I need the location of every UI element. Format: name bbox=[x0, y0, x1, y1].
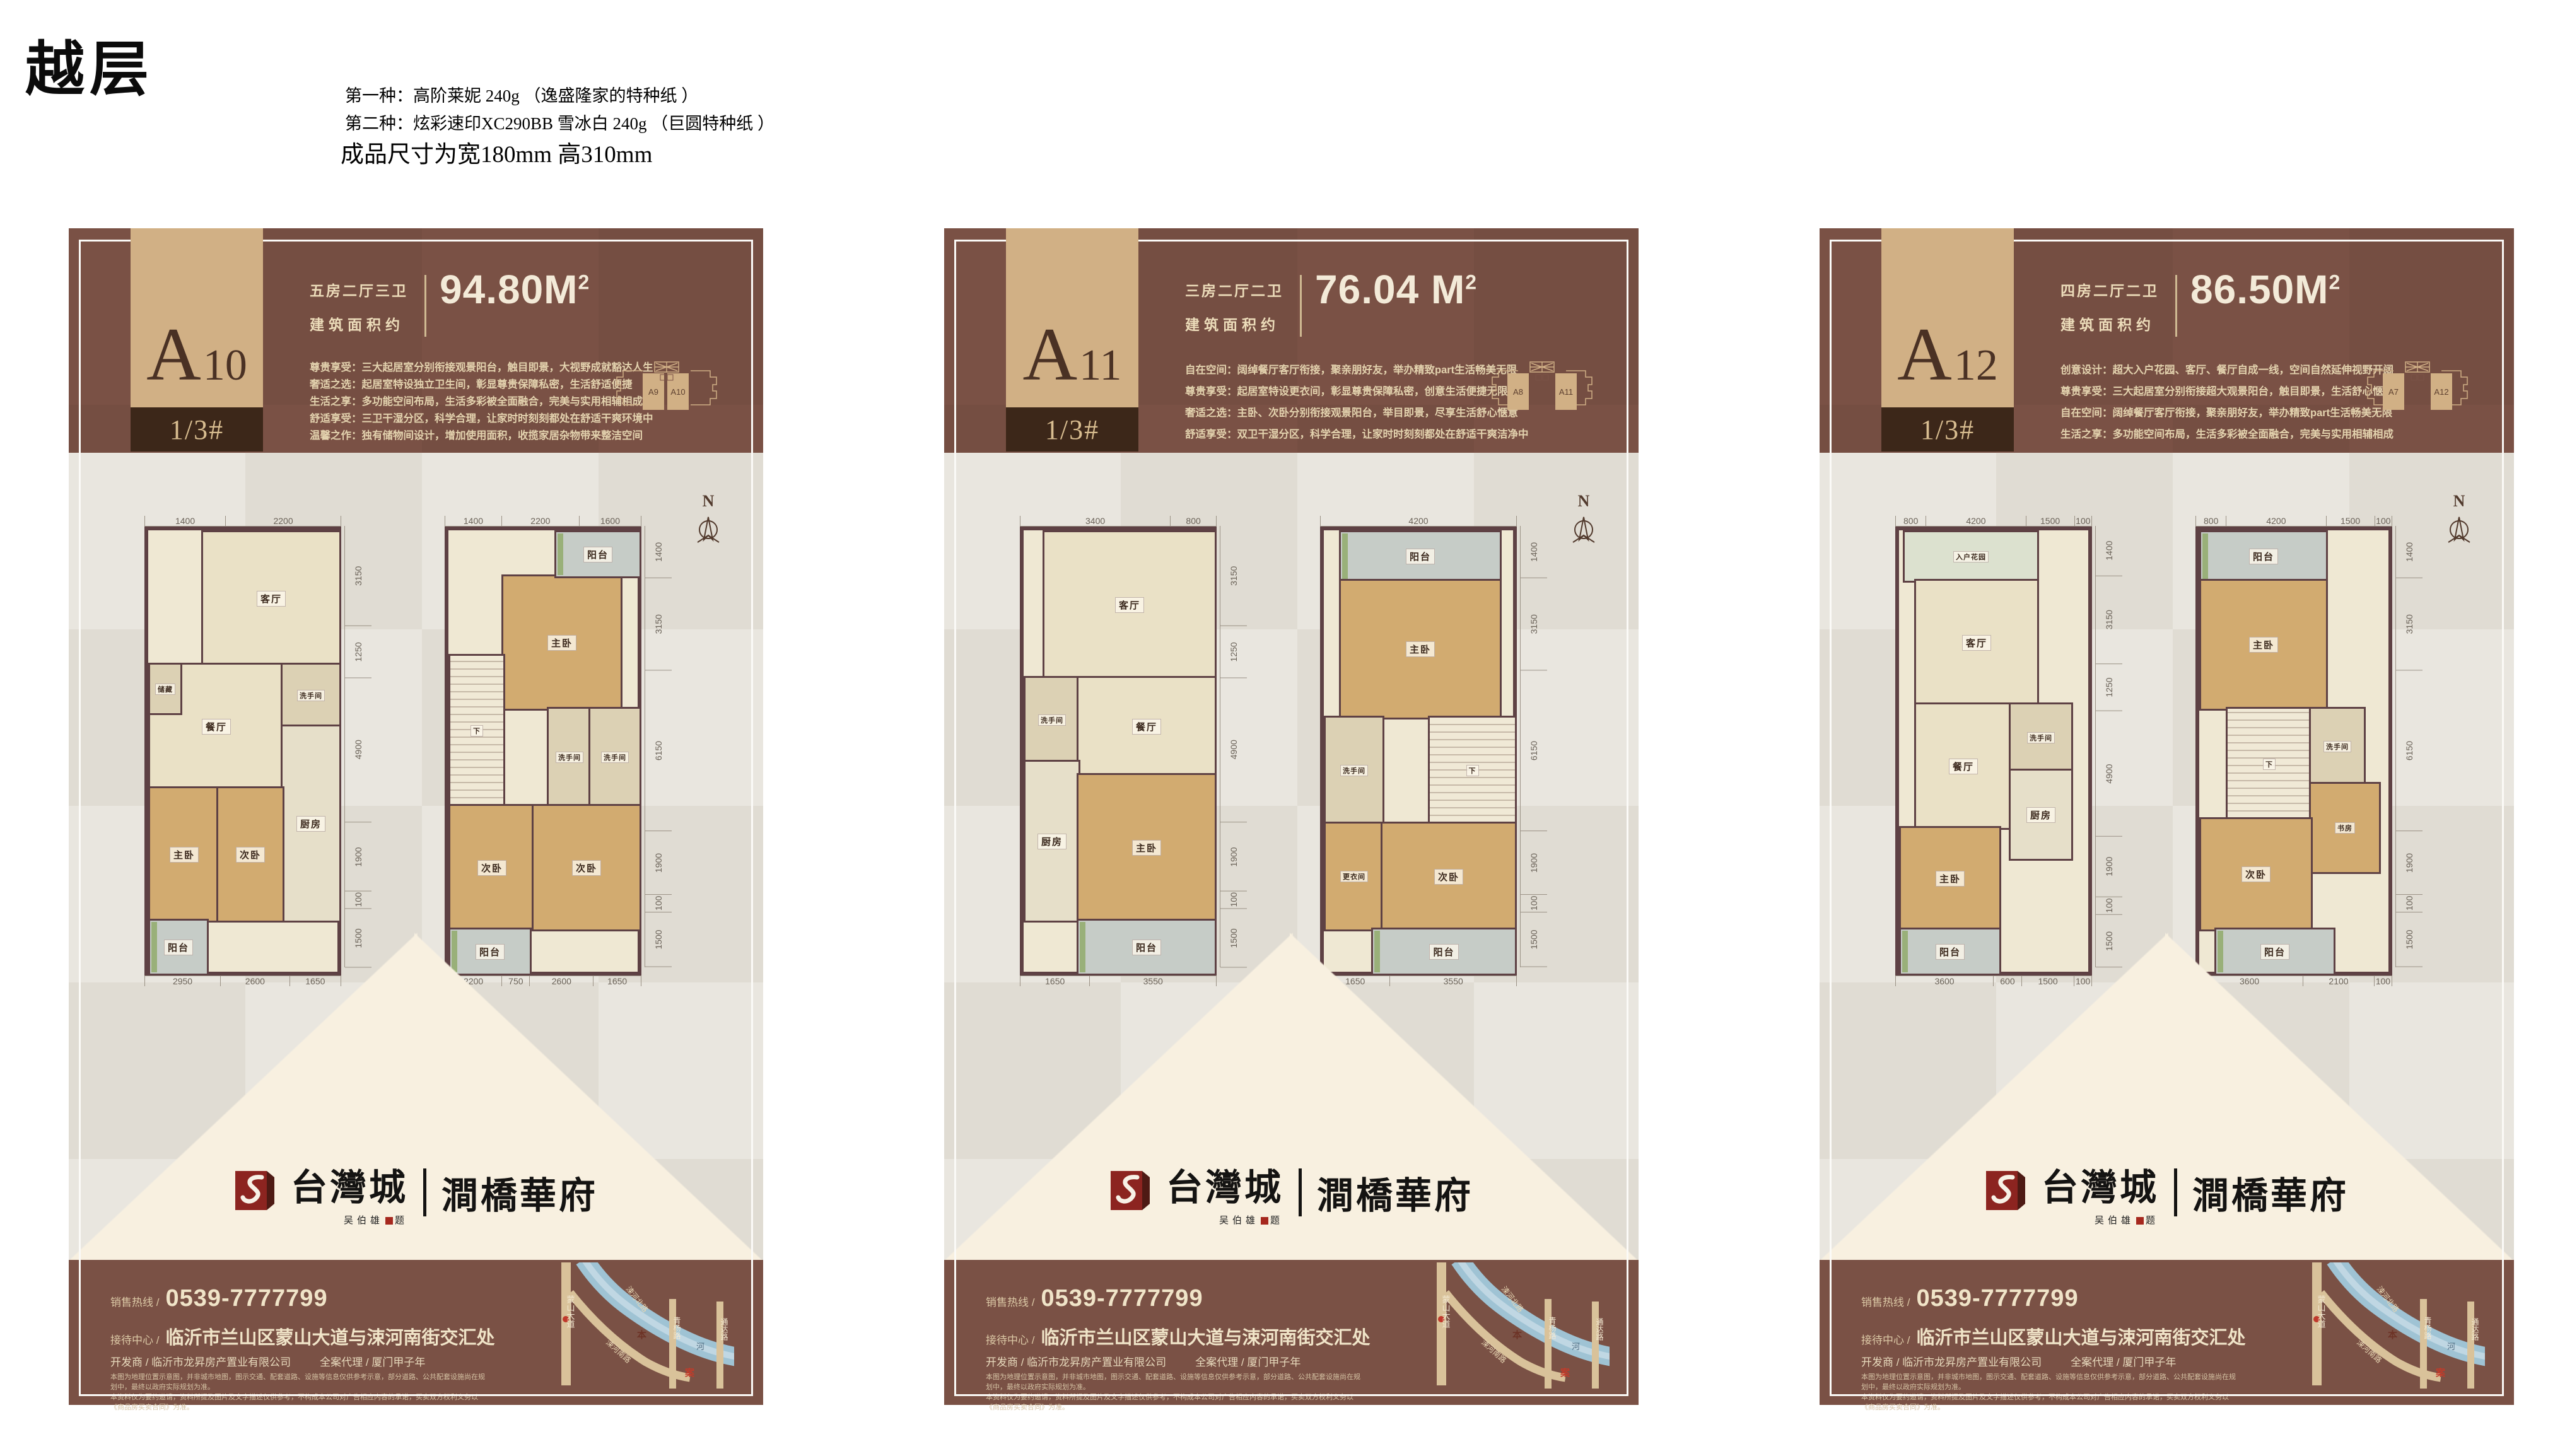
unit-number: 11 bbox=[1079, 344, 1121, 388]
dim-value: 100 bbox=[2075, 516, 2092, 526]
room: 储藏 bbox=[148, 663, 182, 715]
spec-block: 五房二厅三卫建筑面积约 bbox=[310, 279, 408, 334]
area-number: 76.04 M bbox=[1315, 267, 1465, 312]
card-footer: 销售热线 /0539-7777799接待中心 /临沂市兰山区蒙山大道与涑河南街交… bbox=[944, 1260, 1639, 1405]
room: 客厅 bbox=[1043, 530, 1217, 680]
dim-value: 1600 bbox=[580, 516, 641, 526]
dim-value: 1900 bbox=[645, 831, 672, 895]
location-map-icon: 蒙山大道 涑河北路 青杨路 通达路 涑河南路 河 本 案 bbox=[2296, 1262, 2485, 1389]
hotline-label: 销售热线 / bbox=[1861, 1293, 1910, 1309]
brand-name-block: 台灣城吴伯雄题 bbox=[291, 1158, 408, 1226]
brand-name: 台灣城 bbox=[2042, 1158, 2159, 1211]
brand-signature: 吴伯雄题 bbox=[1166, 1213, 1283, 1226]
siteplan-unit-right-label: A12 bbox=[2434, 387, 2448, 397]
area-value: 76.04 M2 bbox=[1315, 266, 1477, 313]
area-superscript: 2 bbox=[2329, 271, 2341, 294]
room-label: 主卧 bbox=[1132, 840, 1161, 856]
room: 客厅 bbox=[201, 530, 341, 667]
dim-value: 100 bbox=[2096, 897, 2122, 915]
location-map: 蒙山大道 涑河北路 青杨路 通达路 涑河南路 河 本 案 bbox=[545, 1262, 734, 1389]
dim-value: 6150 bbox=[645, 670, 672, 831]
dim-value: 3600 bbox=[2195, 976, 2303, 986]
unit-letter: A bbox=[1022, 317, 1077, 392]
disclaimer-line-1: 本图为地理位置示意图，并非城市地图，图示交通、配套道路、设施等信息仅供参考示意，… bbox=[110, 1372, 489, 1392]
dim-value: 2600 bbox=[530, 976, 593, 986]
reception-label: 接待中心 / bbox=[110, 1331, 159, 1347]
flyer-card-A12: 四房二厅二卫建筑面积约86.50M2创意设计：超大入户花园、客厅、餐厅自成一线，… bbox=[1820, 228, 2514, 1405]
unit-letter: A bbox=[1897, 317, 1952, 392]
dimension-column-right: 31501250490019001001500 bbox=[1220, 526, 1247, 967]
dim-value: 600 bbox=[1994, 976, 2022, 986]
dim-value: 3600 bbox=[1895, 976, 1994, 986]
dim-value: 4200 bbox=[1320, 516, 1517, 526]
dim-value: 100 bbox=[1521, 895, 1547, 912]
brand-name: 台灣城 bbox=[291, 1158, 408, 1211]
estate-name: 澗橋華府 bbox=[2192, 1166, 2349, 1219]
dimension-column-right: 14003150615019001001500 bbox=[645, 526, 672, 967]
room: 洗手间 bbox=[547, 707, 592, 808]
dim-value: 1400 bbox=[1521, 526, 1547, 578]
room: 客厅 bbox=[1914, 579, 2039, 706]
siteplan-unit-left-label: A9 bbox=[648, 387, 658, 397]
road-mid-label: 青杨路 bbox=[2423, 1317, 2432, 1340]
plan-outline: 入户花园客厅餐厅洗手间厨房主卧阳台 bbox=[1895, 527, 2092, 976]
road-mid-label: 青杨路 bbox=[1548, 1317, 1557, 1340]
dim-value: 800 bbox=[1895, 516, 1926, 526]
road-mid-band bbox=[2420, 1299, 2427, 1389]
unit-number: 10 bbox=[203, 344, 247, 388]
siteplan-diagram: A7 A12 bbox=[2358, 361, 2477, 421]
road-mid-label: 青杨路 bbox=[672, 1317, 681, 1340]
feature-line: 创意设计：超大入户花园、客厅、餐厅自成一线，空间自然延伸视野开阔 bbox=[2060, 359, 2393, 381]
site-marker-bottom: 案 bbox=[2435, 1367, 2446, 1378]
siteplan-icon: A8 A11 bbox=[1482, 361, 1602, 421]
dimension-row-bottom: 36002100100 bbox=[2195, 976, 2392, 993]
disclaimer: 本图为地理位置示意图，并非城市地图，图示交通、配套道路、设施等信息仅供参考示意，… bbox=[1861, 1372, 2240, 1412]
room-label: 次卧 bbox=[236, 847, 265, 863]
reception-center: 接待中心 /临沂市兰山区蒙山大道与涑河南街交汇处 bbox=[110, 1323, 494, 1349]
room-label: 阳台 bbox=[1429, 944, 1458, 960]
room-label: 洗手间 bbox=[2323, 741, 2351, 752]
dim-value: 1900 bbox=[1220, 823, 1247, 892]
compass: N bbox=[2445, 492, 2474, 550]
area-approx-label: 建筑面积约 bbox=[310, 313, 408, 334]
room: 洗手间 bbox=[2009, 702, 2073, 772]
signature-seal-icon bbox=[2136, 1217, 2144, 1225]
room: 下 bbox=[1428, 716, 1517, 825]
floorplan-lower: 3400800客厅洗手间餐厅厨房主卧阳台31501250490019001001… bbox=[1015, 510, 1247, 993]
sales-hotline: 销售热线 /0539-7777799 bbox=[110, 1285, 328, 1312]
room: 洗手间 bbox=[2309, 707, 2366, 786]
road-right-label: 通达路 bbox=[1595, 1318, 1604, 1341]
unit-tab: A121/3# bbox=[1881, 228, 2014, 451]
room: 洗手间 bbox=[1024, 676, 1080, 764]
room: 更衣间 bbox=[1324, 822, 1384, 931]
room-label: 阳台 bbox=[1936, 944, 1965, 960]
s-mark-icon bbox=[1109, 1170, 1151, 1211]
reception-center: 接待中心 /临沂市兰山区蒙山大道与涑河南街交汇处 bbox=[1861, 1323, 2245, 1349]
room-label: 洗手间 bbox=[556, 752, 583, 763]
room-label: 阳台 bbox=[1406, 549, 1435, 564]
card-footer: 销售热线 /0539-7777799接待中心 /临沂市兰山区蒙山大道与涑河南街交… bbox=[69, 1260, 763, 1405]
dim-value: 1500 bbox=[2327, 516, 2375, 526]
brand-name-block: 台灣城吴伯雄题 bbox=[1166, 1158, 1283, 1226]
room-label: 下 bbox=[2263, 759, 2276, 770]
siteplan-icon: A7 A12 bbox=[2358, 361, 2477, 421]
dimension-column-right: 31501250490019001001500 bbox=[344, 526, 371, 967]
spec-block: 三房二厅二卫建筑面积约 bbox=[1185, 279, 1283, 334]
dim-value: 100 bbox=[345, 891, 371, 909]
divider-line bbox=[1300, 275, 1302, 337]
signature-suffix: 题 bbox=[2146, 1215, 2159, 1226]
dim-value: 800 bbox=[1171, 516, 1217, 526]
feature-line: 尊贵享受：起居室特设更衣间，彰显尊贵保障私密，创意生活便捷无限 bbox=[1185, 381, 1529, 402]
agency-text: 全案代理 / 厦门甲子年 bbox=[2071, 1356, 2176, 1368]
developer-line: 开发商 / 临沂市龙昇房产置业有限公司全案代理 / 厦门甲子年 bbox=[1861, 1353, 2176, 1369]
river-label: 河 bbox=[1572, 1342, 1580, 1351]
brand-signature: 吴伯雄题 bbox=[2042, 1213, 2159, 1226]
feature-line: 奢适之选：起居室特设独立卫生间，彰显尊贵保障私密，生活舒适便捷 bbox=[310, 376, 653, 393]
room-label: 入户花园 bbox=[1953, 551, 1989, 562]
room: 洗手间 bbox=[1324, 716, 1384, 825]
dim-value: 1500 bbox=[1220, 909, 1247, 967]
area-number: 86.50M bbox=[2190, 267, 2329, 312]
dim-value: 800 bbox=[2195, 516, 2226, 526]
dimension-row-bottom: 220075026001650 bbox=[445, 976, 641, 993]
room-label: 更衣间 bbox=[1340, 871, 1368, 882]
compass-icon bbox=[2445, 512, 2474, 547]
room-label: 阳台 bbox=[1132, 940, 1161, 955]
feature-line: 生活之享：多功能空间布局，生活多彩被全面融合，完美与实用相辅相成 bbox=[2060, 424, 2393, 445]
room: 主卧 bbox=[148, 786, 220, 923]
dimension-row-bottom: 16503550 bbox=[1020, 976, 1217, 993]
dim-value: 1500 bbox=[345, 909, 371, 967]
dim-value: 1900 bbox=[2396, 831, 2423, 895]
location-map: 蒙山大道 涑河北路 青杨路 通达路 涑河南路 河 本 案 bbox=[1420, 1262, 1610, 1389]
s-mark-icon bbox=[1985, 1170, 2026, 1211]
siteplan-right-wing bbox=[691, 371, 716, 405]
floorplan-lower: 14002200客厅餐厅储藏洗手间厨房主卧次卧阳台315012504900190… bbox=[139, 510, 371, 993]
site-marker-bottom: 案 bbox=[684, 1367, 695, 1378]
compass: N bbox=[1569, 492, 1598, 550]
feature-line: 舒适享受：双卫干湿分区，科学合理，让家时时刻刻都处在舒适干爽洁净中 bbox=[1185, 424, 1529, 445]
unit-tab-top: A10 bbox=[131, 228, 263, 407]
dim-value: 2600 bbox=[221, 976, 290, 986]
signature-name: 吴伯雄 bbox=[344, 1215, 383, 1226]
site-marker-bottom: 案 bbox=[1560, 1367, 1570, 1378]
feature-line: 尊贵享受：三大起居室分别衔接观景阳台，触目即景，大视野成就豁达人生 bbox=[310, 359, 653, 376]
road-mid-band bbox=[669, 1299, 676, 1389]
area-approx-label: 建筑面积约 bbox=[1185, 313, 1283, 334]
flyer-card-A10: 五房二厅三卫建筑面积约94.80M2尊贵享受：三大起居室分别衔接观景阳台，触目即… bbox=[69, 228, 763, 1405]
divider-line bbox=[2175, 275, 2177, 337]
dim-value: 4200 bbox=[2226, 516, 2326, 526]
dimension-row-top: 80042001500100 bbox=[1895, 510, 2092, 527]
room-label: 阳台 bbox=[2260, 944, 2289, 960]
compass: N bbox=[694, 492, 723, 550]
room-label: 下 bbox=[471, 725, 483, 737]
card-body: N 14002200客厅餐厅储藏洗手间厨房主卧次卧阳台3150125049001… bbox=[69, 453, 763, 1260]
developer-line: 开发商 / 临沂市龙昇房产置业有限公司全案代理 / 厦门甲子年 bbox=[986, 1353, 1300, 1369]
area-superscript: 2 bbox=[578, 271, 590, 294]
dimension-row-bottom: 295026001650 bbox=[144, 976, 341, 993]
dimension-column-right: 14003150615019001001500 bbox=[2395, 526, 2423, 967]
dim-value: 100 bbox=[1220, 891, 1247, 909]
area-superscript: 2 bbox=[1465, 271, 1477, 294]
brand-logo-icon bbox=[234, 1170, 276, 1214]
plan-outline: 客厅洗手间餐厅厨房主卧阳台 bbox=[1020, 527, 1217, 976]
dim-value: 1500 bbox=[2026, 516, 2075, 526]
proof-sheet: 越层 第一种：高阶莱妮 240g （逸盛隆家的特种纸 ） 第二种：炫彩速印XC2… bbox=[0, 0, 2560, 1456]
signature-seal-icon bbox=[385, 1217, 393, 1225]
dim-value: 3150 bbox=[2096, 576, 2122, 664]
room-label: 洗手间 bbox=[2027, 732, 2055, 743]
paper-option-1: 第一种：高阶莱妮 240g （逸盛隆家的特种纸 ） bbox=[345, 82, 698, 107]
dim-value: 1650 bbox=[593, 976, 641, 986]
site-marker-top: 本 bbox=[2388, 1329, 2397, 1341]
room: 厨房 bbox=[281, 725, 341, 923]
siteplan-core-hatch bbox=[655, 362, 679, 372]
room: 阳台 bbox=[1371, 928, 1517, 976]
reception-center: 接待中心 /临沂市兰山区蒙山大道与涑河南街交汇处 bbox=[986, 1323, 1370, 1349]
feature-list: 自在空间：阔绰餐厅客厅衔接，聚亲朋好友，举办精致part生活畅美无限尊贵享受：起… bbox=[1185, 359, 1529, 445]
feature-line: 奢适之选：主卧、次卧分别衔接观景阳台，举目即景，尽享生活舒心惬意 bbox=[1185, 402, 1529, 424]
room: 阳台 bbox=[2214, 928, 2335, 976]
reception-address: 临沂市兰山区蒙山大道与涑河南街交汇处 bbox=[1916, 1323, 2245, 1349]
room: 阳台 bbox=[1077, 919, 1217, 976]
room: 次卧 bbox=[216, 786, 284, 923]
room-label: 次卧 bbox=[1434, 869, 1463, 885]
brand-logo-icon bbox=[1985, 1170, 2026, 1214]
room: 主卧 bbox=[1077, 773, 1217, 923]
estate-name: 澗橋華府 bbox=[441, 1166, 598, 1219]
room: 阳台 bbox=[2199, 530, 2328, 583]
room-label: 主卧 bbox=[2249, 637, 2278, 653]
signature-name: 吴伯雄 bbox=[2095, 1215, 2134, 1226]
dim-value: 1650 bbox=[290, 976, 341, 986]
room: 厨房 bbox=[1024, 760, 1080, 923]
dim-value: 3150 bbox=[2396, 578, 2423, 670]
compass-icon bbox=[1569, 512, 1598, 547]
room-label: 厨房 bbox=[2026, 807, 2055, 823]
paper-option-2: 第二种：炫彩速印XC290BB 雪冰白 240g （巨圆特种纸 ） bbox=[345, 110, 774, 134]
dim-value: 750 bbox=[502, 976, 530, 986]
dim-value: 2100 bbox=[2303, 976, 2375, 986]
room: 下 bbox=[2226, 707, 2313, 821]
developer-text: 开发商 / 临沂市龙昇房产置业有限公司 bbox=[986, 1356, 1166, 1368]
feature-list: 尊贵享受：三大起居室分别衔接观景阳台，触目即景，大视野成就豁达人生奢适之选：起居… bbox=[310, 359, 653, 445]
unit-code: A11 bbox=[1022, 317, 1121, 407]
room-label: 洗手间 bbox=[1038, 714, 1066, 726]
road-right-band bbox=[716, 1302, 723, 1389]
brand-name-block: 台灣城吴伯雄题 bbox=[2042, 1158, 2159, 1226]
card-body: N 80042001500100入户花园客厅餐厅洗手间厨房主卧阳台1400315… bbox=[1820, 453, 2514, 1260]
room-label: 客厅 bbox=[1115, 597, 1144, 613]
feature-line: 生活之享：多功能空间布局，生活多彩被全面融合，完美与实用相辅相成 bbox=[310, 393, 653, 411]
room-count-label: 三房二厅二卫 bbox=[1185, 279, 1283, 300]
hotline-number: 0539-7777799 bbox=[165, 1285, 327, 1312]
room-label: 阳台 bbox=[164, 940, 193, 955]
disclaimer-line-1: 本图为地理位置示意图，并非城市地图，图示交通、配套道路、设施等信息仅供参考示意，… bbox=[986, 1372, 1364, 1392]
dim-value: 3150 bbox=[345, 526, 371, 626]
developer-text: 开发商 / 临沂市龙昇房产置业有限公司 bbox=[110, 1356, 291, 1368]
dim-value: 4900 bbox=[1220, 678, 1247, 822]
unit-tab-top: A11 bbox=[1006, 228, 1138, 407]
brand-logo-row: 台灣城吴伯雄题澗橋華府 bbox=[944, 1158, 1639, 1226]
room-label: 主卧 bbox=[1936, 871, 1965, 887]
brand-name: 台灣城 bbox=[1166, 1158, 1283, 1211]
room: 阳台 bbox=[1899, 928, 2001, 976]
room-label: 洗手间 bbox=[297, 690, 325, 701]
disclaimer-line-1: 本图为地理位置示意图，并非城市地图，图示交通、配套道路、设施等信息仅供参考示意，… bbox=[1861, 1372, 2240, 1392]
agency-text: 全案代理 / 厦门甲子年 bbox=[1195, 1356, 1300, 1368]
dimension-row-top: 14002200 bbox=[144, 510, 341, 527]
location-map-icon: 蒙山大道 涑河北路 青杨路 通达路 涑河南路 河 本 案 bbox=[545, 1262, 734, 1389]
room: 次卧 bbox=[448, 804, 535, 931]
road-right-band bbox=[2467, 1302, 2474, 1389]
siteplan-diagram: A9 A10 bbox=[607, 361, 727, 421]
dim-value: 3550 bbox=[1390, 976, 1517, 986]
room: 阳台 bbox=[148, 919, 209, 976]
area-approx-label: 建筑面积约 bbox=[2060, 313, 2159, 334]
signature-suffix: 题 bbox=[1270, 1215, 1283, 1226]
reception-address: 临沂市兰山区蒙山大道与涑河南街交汇处 bbox=[165, 1323, 494, 1349]
road-left-label: 蒙山大道 bbox=[566, 1295, 575, 1328]
room: 主卧 bbox=[2199, 579, 2328, 711]
sales-hotline: 销售热线 /0539-7777799 bbox=[986, 1285, 1203, 1312]
feature-line: 尊贵享受：三大起居室分别衔接超大观景阳台，触目即景，生活舒心惬意 bbox=[2060, 381, 2393, 402]
room: 餐厅 bbox=[1077, 676, 1217, 777]
dim-value: 1500 bbox=[645, 912, 672, 967]
dim-value: 100 bbox=[645, 895, 672, 912]
s-mark-icon bbox=[234, 1170, 276, 1211]
dim-value: 1650 bbox=[1320, 976, 1390, 986]
finished-size-note: 成品尺寸为宽180mm 高310mm bbox=[341, 135, 652, 169]
reception-address: 临沂市兰山区蒙山大道与涑河南街交汇处 bbox=[1041, 1323, 1370, 1349]
dim-value: 2200 bbox=[445, 976, 502, 986]
room-label: 次卧 bbox=[572, 860, 601, 876]
elevator-box-1 bbox=[2411, 375, 2417, 380]
logo-divider bbox=[2174, 1168, 2177, 1216]
feature-line: 自在空间：阔绰餐厅客厅衔接，聚亲朋好友，举办精致part生活畅美无限 bbox=[2060, 402, 2393, 424]
room-label: 储藏 bbox=[155, 684, 175, 695]
room-label: 主卧 bbox=[547, 635, 576, 651]
location-map-icon: 蒙山大道 涑河北路 青杨路 通达路 涑河南路 河 本 案 bbox=[1420, 1262, 1610, 1389]
room: 次卧 bbox=[2199, 817, 2313, 931]
sheet-title: 越层 bbox=[25, 21, 154, 107]
dim-value: 1500 bbox=[2022, 976, 2074, 986]
siteplan-unit-right-label: A11 bbox=[1559, 387, 1573, 397]
room: 书房 bbox=[2309, 782, 2381, 874]
card-footer: 销售热线 /0539-7777799接待中心 /临沂市兰山区蒙山大道与涑河南街交… bbox=[1820, 1260, 2514, 1405]
dim-value: 2200 bbox=[502, 516, 580, 526]
river-label: 河 bbox=[2447, 1342, 2455, 1351]
estate-name: 澗橋華府 bbox=[1317, 1166, 1473, 1219]
plan-outline: 客厅餐厅储藏洗手间厨房主卧次卧阳台 bbox=[144, 527, 341, 976]
dim-value: 1250 bbox=[1220, 626, 1247, 678]
unit-code: A12 bbox=[1897, 317, 1998, 407]
dim-value: 100 bbox=[2375, 516, 2392, 526]
dim-value: 100 bbox=[2396, 895, 2423, 912]
dim-value: 4200 bbox=[1926, 516, 2026, 526]
siteplan-core-hatch bbox=[2405, 362, 2429, 372]
room-label: 主卧 bbox=[170, 847, 199, 863]
room-label: 洗手间 bbox=[1340, 765, 1368, 776]
dimension-row-top: 80042001500100 bbox=[2195, 510, 2392, 527]
unit-code: A10 bbox=[146, 317, 247, 407]
elevator-box-2 bbox=[2418, 375, 2424, 380]
feature-line: 温馨之作：独有储物间设计，增加使用面积，收揽家居杂物带来整洁空间 bbox=[310, 428, 653, 445]
disclaimer-line-2: 本资料仅为要约邀请，资料所提及图片及文字描述仅供参考，不构成本公司对广告相应内容… bbox=[110, 1392, 489, 1412]
room: 洗手间 bbox=[281, 663, 341, 728]
signature-suffix: 题 bbox=[395, 1215, 408, 1226]
flyer-card-A11: 三房二厅二卫建筑面积约76.04 M2自在空间：阔绰餐厅客厅衔接，聚亲朋好友，举… bbox=[944, 228, 1639, 1405]
floorplan-upper: 80042001500100阳台主卧下洗手间书房次卧阳台140031506150… bbox=[2190, 510, 2423, 993]
room-label: 厨房 bbox=[1037, 834, 1067, 849]
feature-line: 舒适享受：三卫干湿分区，科学合理，让家时时刻刻都处在舒适干爽环境中 bbox=[310, 411, 653, 428]
signature-name: 吴伯雄 bbox=[1219, 1215, 1259, 1226]
reception-label: 接待中心 / bbox=[986, 1331, 1034, 1347]
room: 阳台 bbox=[554, 530, 641, 578]
brand-logo-icon bbox=[1109, 1170, 1151, 1214]
room-label: 主卧 bbox=[1406, 641, 1435, 657]
reception-label: 接待中心 / bbox=[1861, 1331, 1910, 1347]
dim-value: 1400 bbox=[2396, 526, 2423, 578]
hotline-number: 0539-7777799 bbox=[1041, 1285, 1203, 1312]
dim-value: 1500 bbox=[2096, 915, 2122, 967]
dim-value: 6150 bbox=[2396, 670, 2423, 831]
developer-line: 开发商 / 临沂市龙昇房产置业有限公司全案代理 / 厦门甲子年 bbox=[110, 1353, 425, 1369]
road-right-label: 通达路 bbox=[720, 1318, 728, 1341]
dim-value: 3150 bbox=[1521, 578, 1547, 670]
room: 主卧 bbox=[501, 574, 622, 711]
dim-value: 6150 bbox=[1521, 670, 1547, 831]
disclaimer-line-2: 本资料仅为要约邀请，资料所提及图片及文字描述仅供参考，不构成本公司对广告相应内容… bbox=[986, 1392, 1364, 1412]
siteplan-left-wing bbox=[617, 371, 643, 405]
dim-value: 3150 bbox=[645, 578, 672, 670]
room-label: 餐厅 bbox=[202, 719, 231, 735]
room-label: 厨房 bbox=[296, 816, 325, 832]
unit-tab: A111/3# bbox=[1006, 228, 1138, 451]
disclaimer-line-2: 本资料仅为要约邀请，资料所提及图片及文字描述仅供参考，不构成本公司对广告相应内容… bbox=[1861, 1392, 2240, 1412]
compass-north-label: N bbox=[1569, 492, 1598, 511]
floorplan-lower: 80042001500100入户花园客厅餐厅洗手间厨房主卧阳台140031501… bbox=[1890, 510, 2122, 993]
feature-list: 创意设计：超大入户花园、客厅、餐厅自成一线，空间自然延伸视野开阔尊贵享受：三大起… bbox=[2060, 359, 2393, 445]
unit-letter: A bbox=[146, 317, 201, 392]
room: 主卧 bbox=[1339, 579, 1502, 719]
siteplan-unit-left-label: A8 bbox=[1513, 387, 1523, 397]
dim-value: 1250 bbox=[345, 626, 371, 678]
compass-north-label: N bbox=[694, 492, 723, 511]
card-body: N 3400800客厅洗手间餐厅厨房主卧阳台315012504900190010… bbox=[944, 453, 1639, 1260]
dim-value: 1500 bbox=[1521, 912, 1547, 967]
dim-value: 1400 bbox=[645, 526, 672, 578]
block-label: 1/3# bbox=[131, 407, 263, 451]
disclaimer: 本图为地理位置示意图，并非城市地图，图示交通、配套道路、设施等信息仅供参考示意，… bbox=[110, 1372, 489, 1412]
dimension-row-top: 4200 bbox=[1320, 510, 1517, 527]
dimension-row-top: 3400800 bbox=[1020, 510, 1217, 527]
room-label: 洗手间 bbox=[601, 752, 629, 763]
dim-value: 100 bbox=[2375, 976, 2392, 986]
dim-value: 1650 bbox=[1020, 976, 1090, 986]
dim-value: 2950 bbox=[144, 976, 221, 986]
room: 次卧 bbox=[532, 804, 641, 931]
area-value: 86.50M2 bbox=[2190, 266, 2341, 313]
disclaimer: 本图为地理位置示意图，并非城市地图，图示交通、配套道路、设施等信息仅供参考示意，… bbox=[986, 1372, 1364, 1412]
plan-outline: 主卧阳台下洗手间洗手间次卧次卧阳台 bbox=[445, 527, 641, 976]
room: 阳台 bbox=[448, 928, 532, 976]
elevator-box-2 bbox=[1543, 375, 1548, 380]
